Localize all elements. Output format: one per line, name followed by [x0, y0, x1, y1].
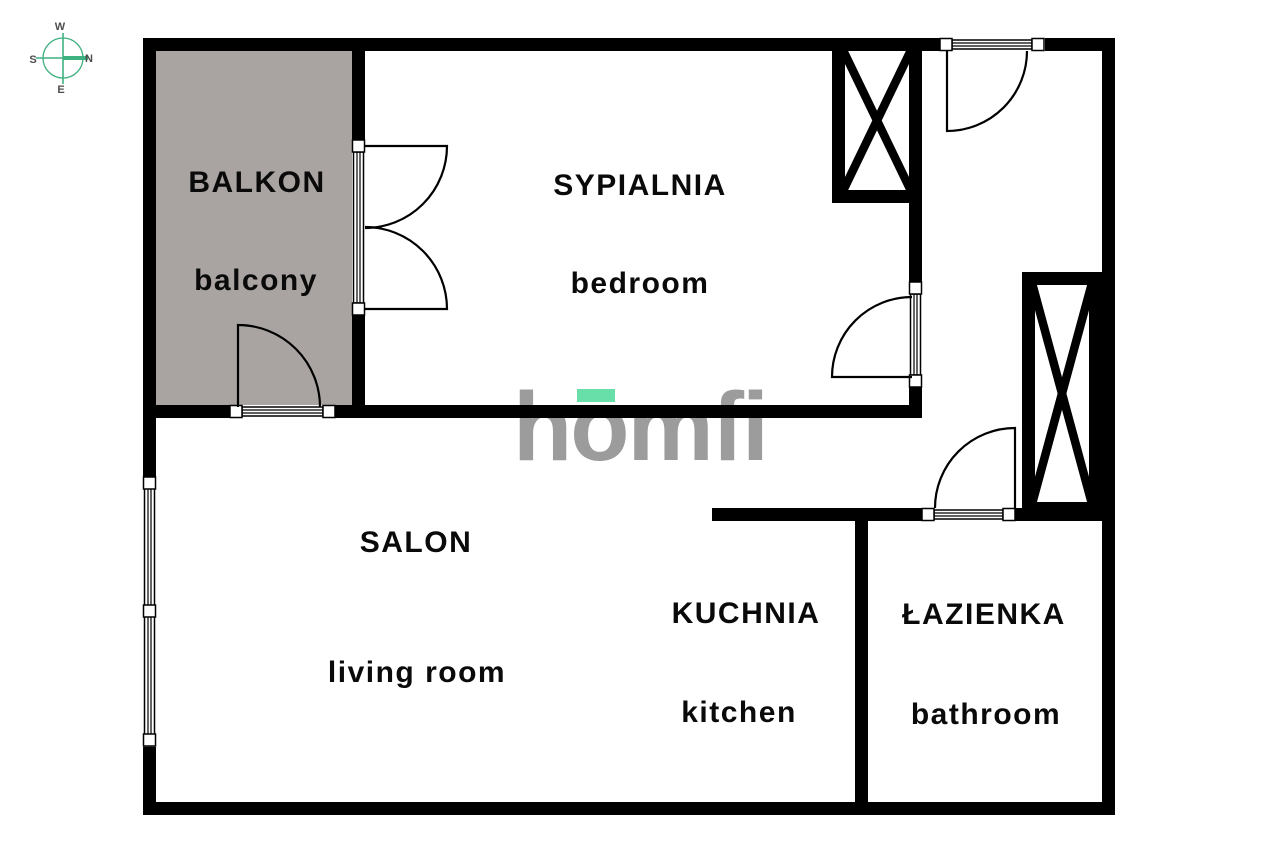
balcony-floor [156, 51, 352, 405]
room-label-bedroom-en: bedroom [571, 267, 710, 301]
bathroom-door [922, 428, 1015, 521]
balcony-french-door [353, 140, 448, 315]
shaft-box-hallway [1029, 279, 1096, 509]
room-label-living-room-pl: SALON [360, 526, 473, 560]
room-label-bathroom-en: bathroom [911, 698, 1061, 732]
bedroom-door [832, 282, 922, 387]
window-left [144, 477, 156, 746]
room-label-bathroom-pl: ŁAZIENKA [902, 598, 1066, 632]
room-label-bedroom-pl: SYPIALNIA [553, 169, 727, 203]
room-label-balcony-en: balcony [194, 264, 318, 298]
homfi-logo: homfi [513, 371, 767, 483]
room-label-balcony-pl: BALKON [188, 166, 325, 200]
floor-plan-canvas: W S N E BALKON balcony SYPIALNIA bedroom… [0, 0, 1280, 852]
compass-label-west: W [55, 21, 65, 33]
compass-icon [36, 33, 88, 84]
shaft-box-bedroom [839, 45, 916, 197]
room-label-kitchen-en: kitchen [681, 696, 797, 730]
room-label-living-room-en: living room [328, 656, 506, 690]
compass-label-east: E [57, 84, 64, 96]
compass-label-north: N [85, 53, 93, 65]
entrance-door [940, 39, 1044, 132]
room-label-kitchen-pl: KUCHNIA [672, 597, 821, 631]
compass-label-south: S [29, 54, 36, 66]
